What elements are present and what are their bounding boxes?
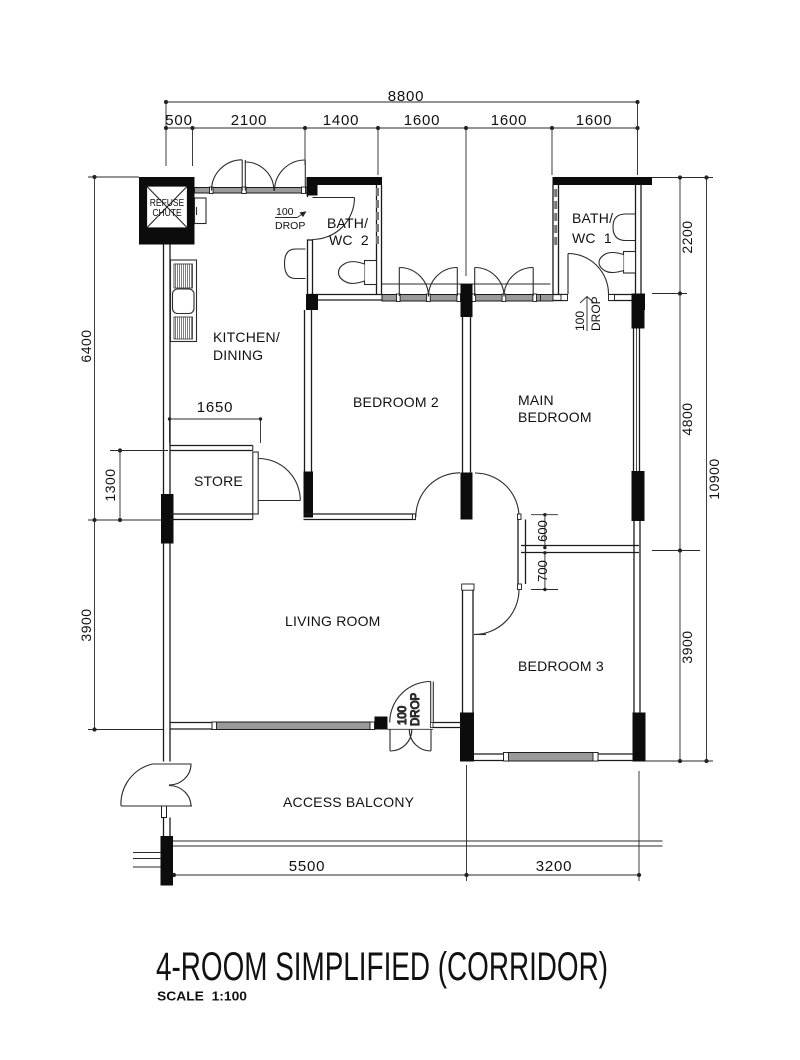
svg-text:1600: 1600	[576, 112, 613, 129]
svg-text:CHUTE: CHUTE	[152, 207, 181, 218]
svg-text:DROP: DROP	[275, 220, 305, 232]
svg-text:DROP: DROP	[410, 692, 422, 726]
svg-text:DROP: DROP	[589, 296, 603, 331]
svg-text:KITCHEN/: KITCHEN/	[213, 329, 280, 345]
svg-text:100: 100	[397, 706, 409, 725]
svg-text:100: 100	[276, 206, 294, 218]
svg-text:ACCESS BALCONY: ACCESS BALCONY	[283, 794, 415, 810]
svg-text:WC 1: WC 1	[572, 230, 612, 246]
svg-text:BATH/: BATH/	[572, 210, 613, 226]
svg-text:WC 2: WC 2	[329, 232, 369, 248]
svg-text:1650: 1650	[197, 399, 234, 416]
svg-text:BEDROOM 2: BEDROOM 2	[353, 394, 439, 410]
svg-text:600: 600	[535, 520, 550, 542]
svg-text:BEDROOM: BEDROOM	[518, 409, 592, 425]
svg-text:700: 700	[535, 560, 550, 582]
svg-text:2200: 2200	[679, 220, 695, 253]
svg-text:2100: 2100	[231, 112, 268, 129]
svg-text:STORE: STORE	[194, 473, 243, 489]
svg-text:100: 100	[573, 311, 587, 331]
svg-text:8800: 8800	[388, 88, 425, 105]
svg-text:5500: 5500	[289, 858, 326, 875]
svg-text:3900: 3900	[679, 630, 695, 663]
svg-text:10900: 10900	[706, 458, 722, 499]
svg-text:MAIN: MAIN	[518, 392, 554, 408]
svg-text:1600: 1600	[404, 112, 441, 129]
svg-text:LIVING ROOM: LIVING ROOM	[285, 613, 381, 629]
svg-text:BATH/: BATH/	[327, 215, 368, 231]
svg-text:3200: 3200	[536, 858, 573, 875]
svg-text:500: 500	[165, 112, 192, 129]
svg-text:1400: 1400	[323, 112, 360, 129]
svg-text:SCALE 1:100: SCALE 1:100	[157, 989, 247, 1004]
svg-text:4-ROOM SIMPLIFIED (CORRIDOR): 4-ROOM SIMPLIFIED (CORRIDOR)	[156, 945, 608, 989]
svg-text:BEDROOM 3: BEDROOM 3	[518, 658, 604, 674]
svg-text:DINING: DINING	[213, 347, 263, 363]
svg-text:3900: 3900	[78, 608, 94, 641]
svg-text:6400: 6400	[78, 329, 94, 362]
svg-text:1300: 1300	[102, 468, 118, 501]
svg-text:4800: 4800	[679, 402, 695, 435]
svg-text:1600: 1600	[491, 112, 528, 129]
